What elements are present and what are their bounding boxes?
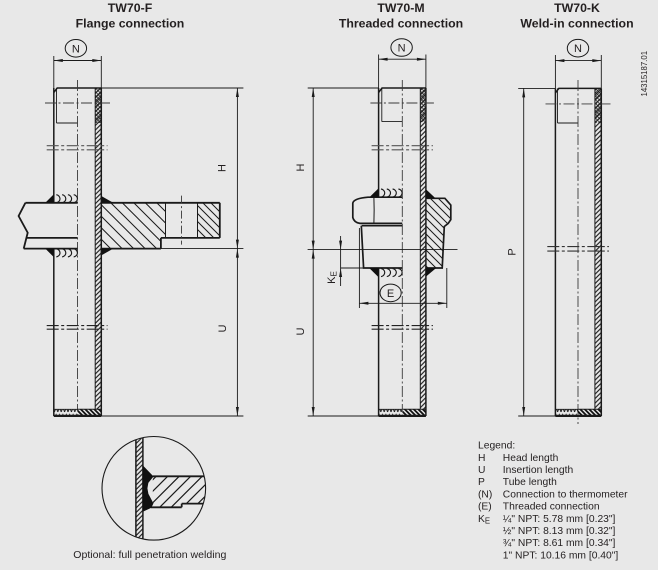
svg-text:½" NPT: 8.13 mm [0.32"]: ½" NPT: 8.13 mm [0.32"] [503, 526, 616, 537]
svg-text:P: P [507, 248, 519, 255]
svg-text:Legend:: Legend: [478, 441, 515, 452]
svg-text:TW70-F: TW70-F [108, 1, 153, 15]
svg-text:1" NPT: 10.16 mm [0.40"]: 1" NPT: 10.16 mm [0.40"] [503, 550, 619, 561]
svg-text:H: H [216, 164, 228, 172]
svg-text:H: H [478, 453, 485, 464]
svg-text:Weld-in connection: Weld-in connection [520, 17, 633, 31]
svg-text:E: E [387, 288, 394, 300]
svg-text:¾" NPT: 8.61 mm [0.34"]: ¾" NPT: 8.61 mm [0.34"] [503, 538, 616, 549]
svg-text:Threaded connection: Threaded connection [503, 502, 600, 513]
svg-text:Threaded connection: Threaded connection [339, 17, 463, 31]
svg-text:14315187.01: 14315187.01 [640, 51, 649, 97]
svg-text:U: U [478, 465, 485, 476]
svg-text:Flange connection: Flange connection [76, 17, 185, 31]
svg-text:TW70-M: TW70-M [377, 1, 424, 15]
svg-text:Optional: full penetration wel: Optional: full penetration welding [73, 549, 226, 561]
svg-text:P: P [478, 477, 485, 488]
svg-text:KE: KE [478, 514, 490, 526]
svg-text:N: N [574, 43, 582, 55]
svg-text:Head length: Head length [503, 453, 559, 464]
svg-text:U: U [217, 324, 229, 332]
svg-text:Insertion length: Insertion length [503, 465, 574, 476]
svg-text:(E): (E) [478, 502, 492, 513]
svg-text:(N): (N) [478, 489, 492, 500]
svg-text:U: U [295, 327, 307, 335]
svg-text:Connection to thermometer: Connection to thermometer [503, 489, 628, 500]
svg-text:Tube length: Tube length [503, 477, 557, 488]
svg-text:N: N [398, 43, 406, 55]
svg-text:H: H [295, 163, 307, 171]
svg-text:¼" NPT: 5.78 mm [0.23"]: ¼" NPT: 5.78 mm [0.23"] [503, 513, 616, 525]
svg-text:TW70-K: TW70-K [554, 1, 600, 15]
svg-text:N: N [72, 43, 80, 55]
